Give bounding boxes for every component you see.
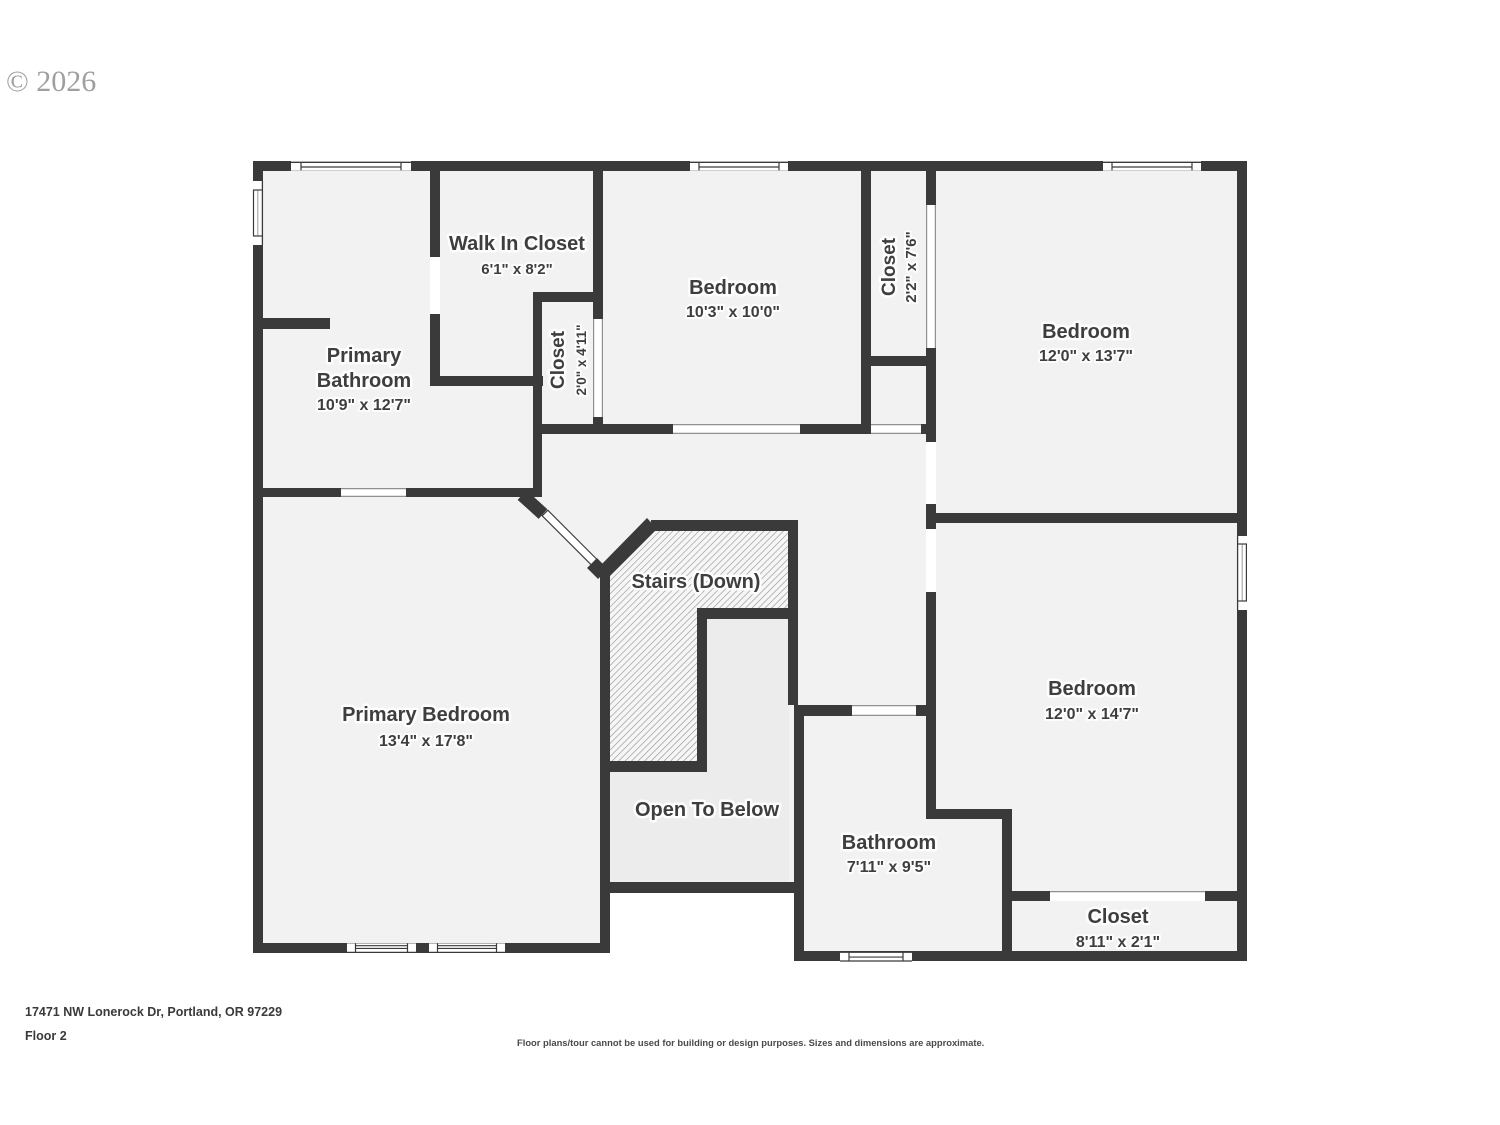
svg-text:Closet: Closet: [879, 237, 900, 296]
svg-text:10'9" x 12'7": 10'9" x 12'7": [317, 397, 411, 414]
svg-text:Primary: Primary: [327, 345, 402, 367]
svg-text:Open To Below: Open To Below: [635, 799, 780, 821]
svg-text:8'11" x 2'1": 8'11" x 2'1": [1076, 934, 1160, 951]
svg-text:Floor plans/tour cannot be use: Floor plans/tour cannot be used for buil…: [517, 1037, 984, 1048]
svg-text:Bedroom: Bedroom: [689, 277, 777, 299]
svg-text:6'1" x 8'2": 6'1" x 8'2": [481, 261, 552, 278]
svg-text:Bedroom: Bedroom: [1042, 321, 1130, 343]
svg-text:13'4" x 17'8": 13'4" x 17'8": [379, 733, 473, 750]
svg-text:Primary Bedroom: Primary Bedroom: [342, 704, 510, 726]
svg-text:Walk In Closet: Walk In Closet: [449, 233, 585, 255]
svg-text:Bathroom: Bathroom: [317, 370, 411, 392]
svg-text:7'11" x 9'5": 7'11" x 9'5": [847, 859, 931, 876]
svg-text:Closet: Closet: [1087, 906, 1148, 928]
svg-text:Bathroom: Bathroom: [842, 832, 936, 854]
svg-text:2'2" x 7'6": 2'2" x 7'6": [903, 231, 920, 302]
svg-text:12'0" x 14'7": 12'0" x 14'7": [1045, 706, 1139, 723]
svg-text:Floor 2: Floor 2: [25, 1029, 67, 1043]
svg-text:© 2026: © 2026: [6, 65, 96, 98]
svg-text:Bedroom: Bedroom: [1048, 678, 1136, 700]
svg-text:2'0" x 4'11": 2'0" x 4'11": [574, 324, 589, 395]
svg-text:17471 NW Lonerock Dr, Portland: 17471 NW Lonerock Dr, Portland, OR 97229: [25, 1005, 282, 1019]
svg-text:Closet: Closet: [548, 330, 569, 389]
svg-text:Stairs (Down): Stairs (Down): [632, 571, 761, 593]
svg-text:12'0" x 13'7": 12'0" x 13'7": [1039, 348, 1133, 365]
svg-text:10'3" x 10'0": 10'3" x 10'0": [686, 304, 780, 321]
